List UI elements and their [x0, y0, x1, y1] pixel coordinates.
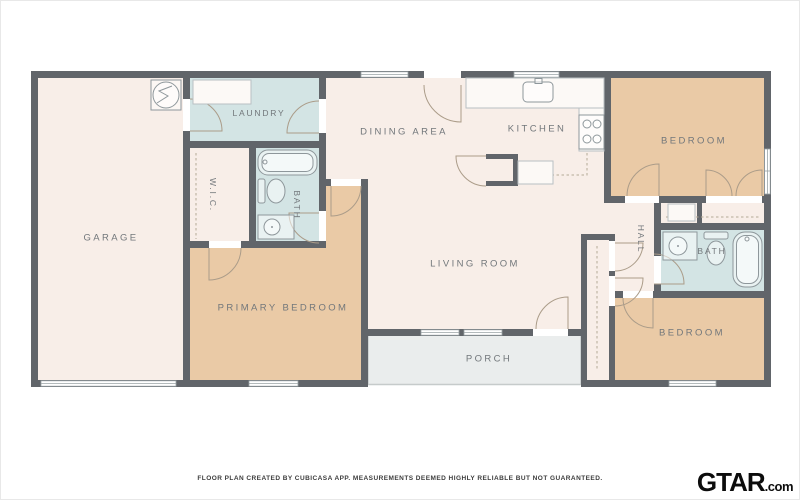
- gtar-logo-brand: GTAR: [697, 467, 765, 497]
- floor-plan-graphics: [31, 71, 771, 387]
- window: [464, 330, 502, 335]
- room-label-living: LIVING ROOM: [430, 259, 520, 270]
- room-label-hall: HALL: [636, 225, 646, 253]
- door-opening: [319, 99, 326, 133]
- room-bedroom-bottom-right: [615, 298, 764, 380]
- door-opening: [609, 276, 615, 306]
- laundry-counter: [193, 80, 251, 104]
- sink-icon: [663, 232, 697, 260]
- floor-plan: GARAGE LAUNDRY W.I.C. BATH DINING AREA K…: [31, 71, 771, 387]
- room-label-dining: DINING AREA: [360, 127, 448, 138]
- bathtub-icon: [258, 150, 317, 175]
- bathtub-icon: [733, 232, 762, 287]
- door-opening: [654, 256, 661, 284]
- window: [765, 149, 771, 194]
- water-heater-icon: [151, 80, 181, 110]
- room-label-kitchen: KITCHEN: [508, 124, 567, 135]
- kitchen-island-counter: [518, 161, 553, 184]
- sink-icon: [258, 215, 294, 239]
- door-opening: [331, 179, 361, 186]
- door-opening: [625, 196, 659, 203]
- room-label-laundry: LAUNDRY: [232, 108, 285, 118]
- gtar-logo-suffix: .com: [765, 479, 793, 494]
- window: [669, 381, 716, 386]
- wall: [31, 71, 38, 387]
- wall: [654, 223, 771, 230]
- door-opening: [183, 99, 190, 131]
- wall: [183, 241, 326, 248]
- wall: [581, 234, 587, 380]
- room-label-primary-bedroom: PRIMARY BEDROOM: [218, 303, 349, 314]
- gtar-logo: GTAR.com: [697, 467, 793, 498]
- door-opening: [609, 241, 615, 271]
- room-label-garage: GARAGE: [83, 233, 138, 244]
- wall: [697, 203, 702, 223]
- wall: [183, 141, 326, 148]
- disclaimer-text: FLOOR PLAN CREATED BY CUBICASA APP. MEAS…: [1, 475, 799, 482]
- door-opening: [533, 329, 568, 336]
- door-opening: [319, 211, 326, 241]
- wall: [604, 78, 611, 203]
- window: [514, 72, 559, 77]
- window: [361, 72, 408, 77]
- wall: [249, 148, 256, 241]
- garage-door: [41, 381, 176, 386]
- kitchen-sink-icon: [523, 79, 553, 103]
- room-label-bath-hall: BATH: [697, 246, 726, 256]
- door-opening: [706, 196, 762, 203]
- stove-icon: [579, 115, 604, 149]
- closet-shelf: [668, 204, 695, 221]
- room-label-bath-primary: BATH: [292, 190, 302, 219]
- toilet-icon: [258, 179, 285, 203]
- room-label-porch: PORCH: [466, 354, 512, 365]
- floor-plan-page: GARAGE LAUNDRY W.I.C. BATH DINING AREA K…: [0, 0, 800, 500]
- door-opening: [424, 71, 461, 78]
- wall: [361, 179, 368, 387]
- window: [249, 381, 298, 386]
- room-label-bedroom-bottom-right: BEDROOM: [659, 328, 725, 339]
- door-opening: [209, 241, 241, 248]
- window: [421, 330, 459, 335]
- room-label-bedroom-top-right: BEDROOM: [661, 136, 727, 147]
- room-label-wic: W.I.C.: [208, 178, 218, 212]
